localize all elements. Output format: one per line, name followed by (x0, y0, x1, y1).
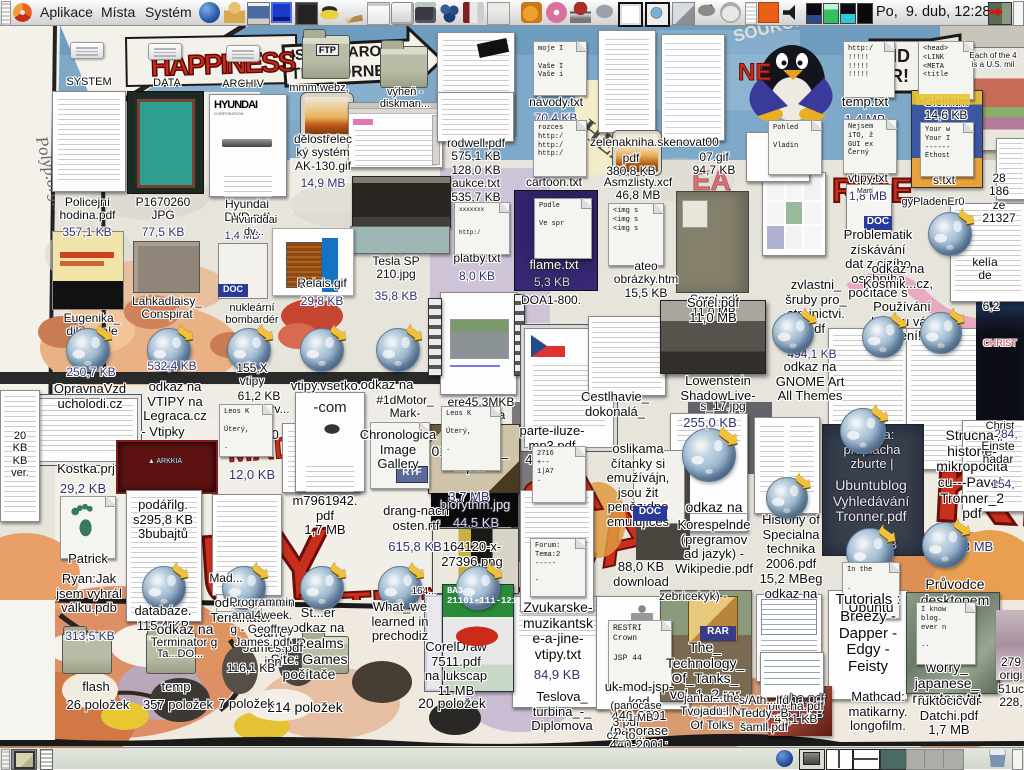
svg-text:NE: NE (738, 59, 771, 86)
